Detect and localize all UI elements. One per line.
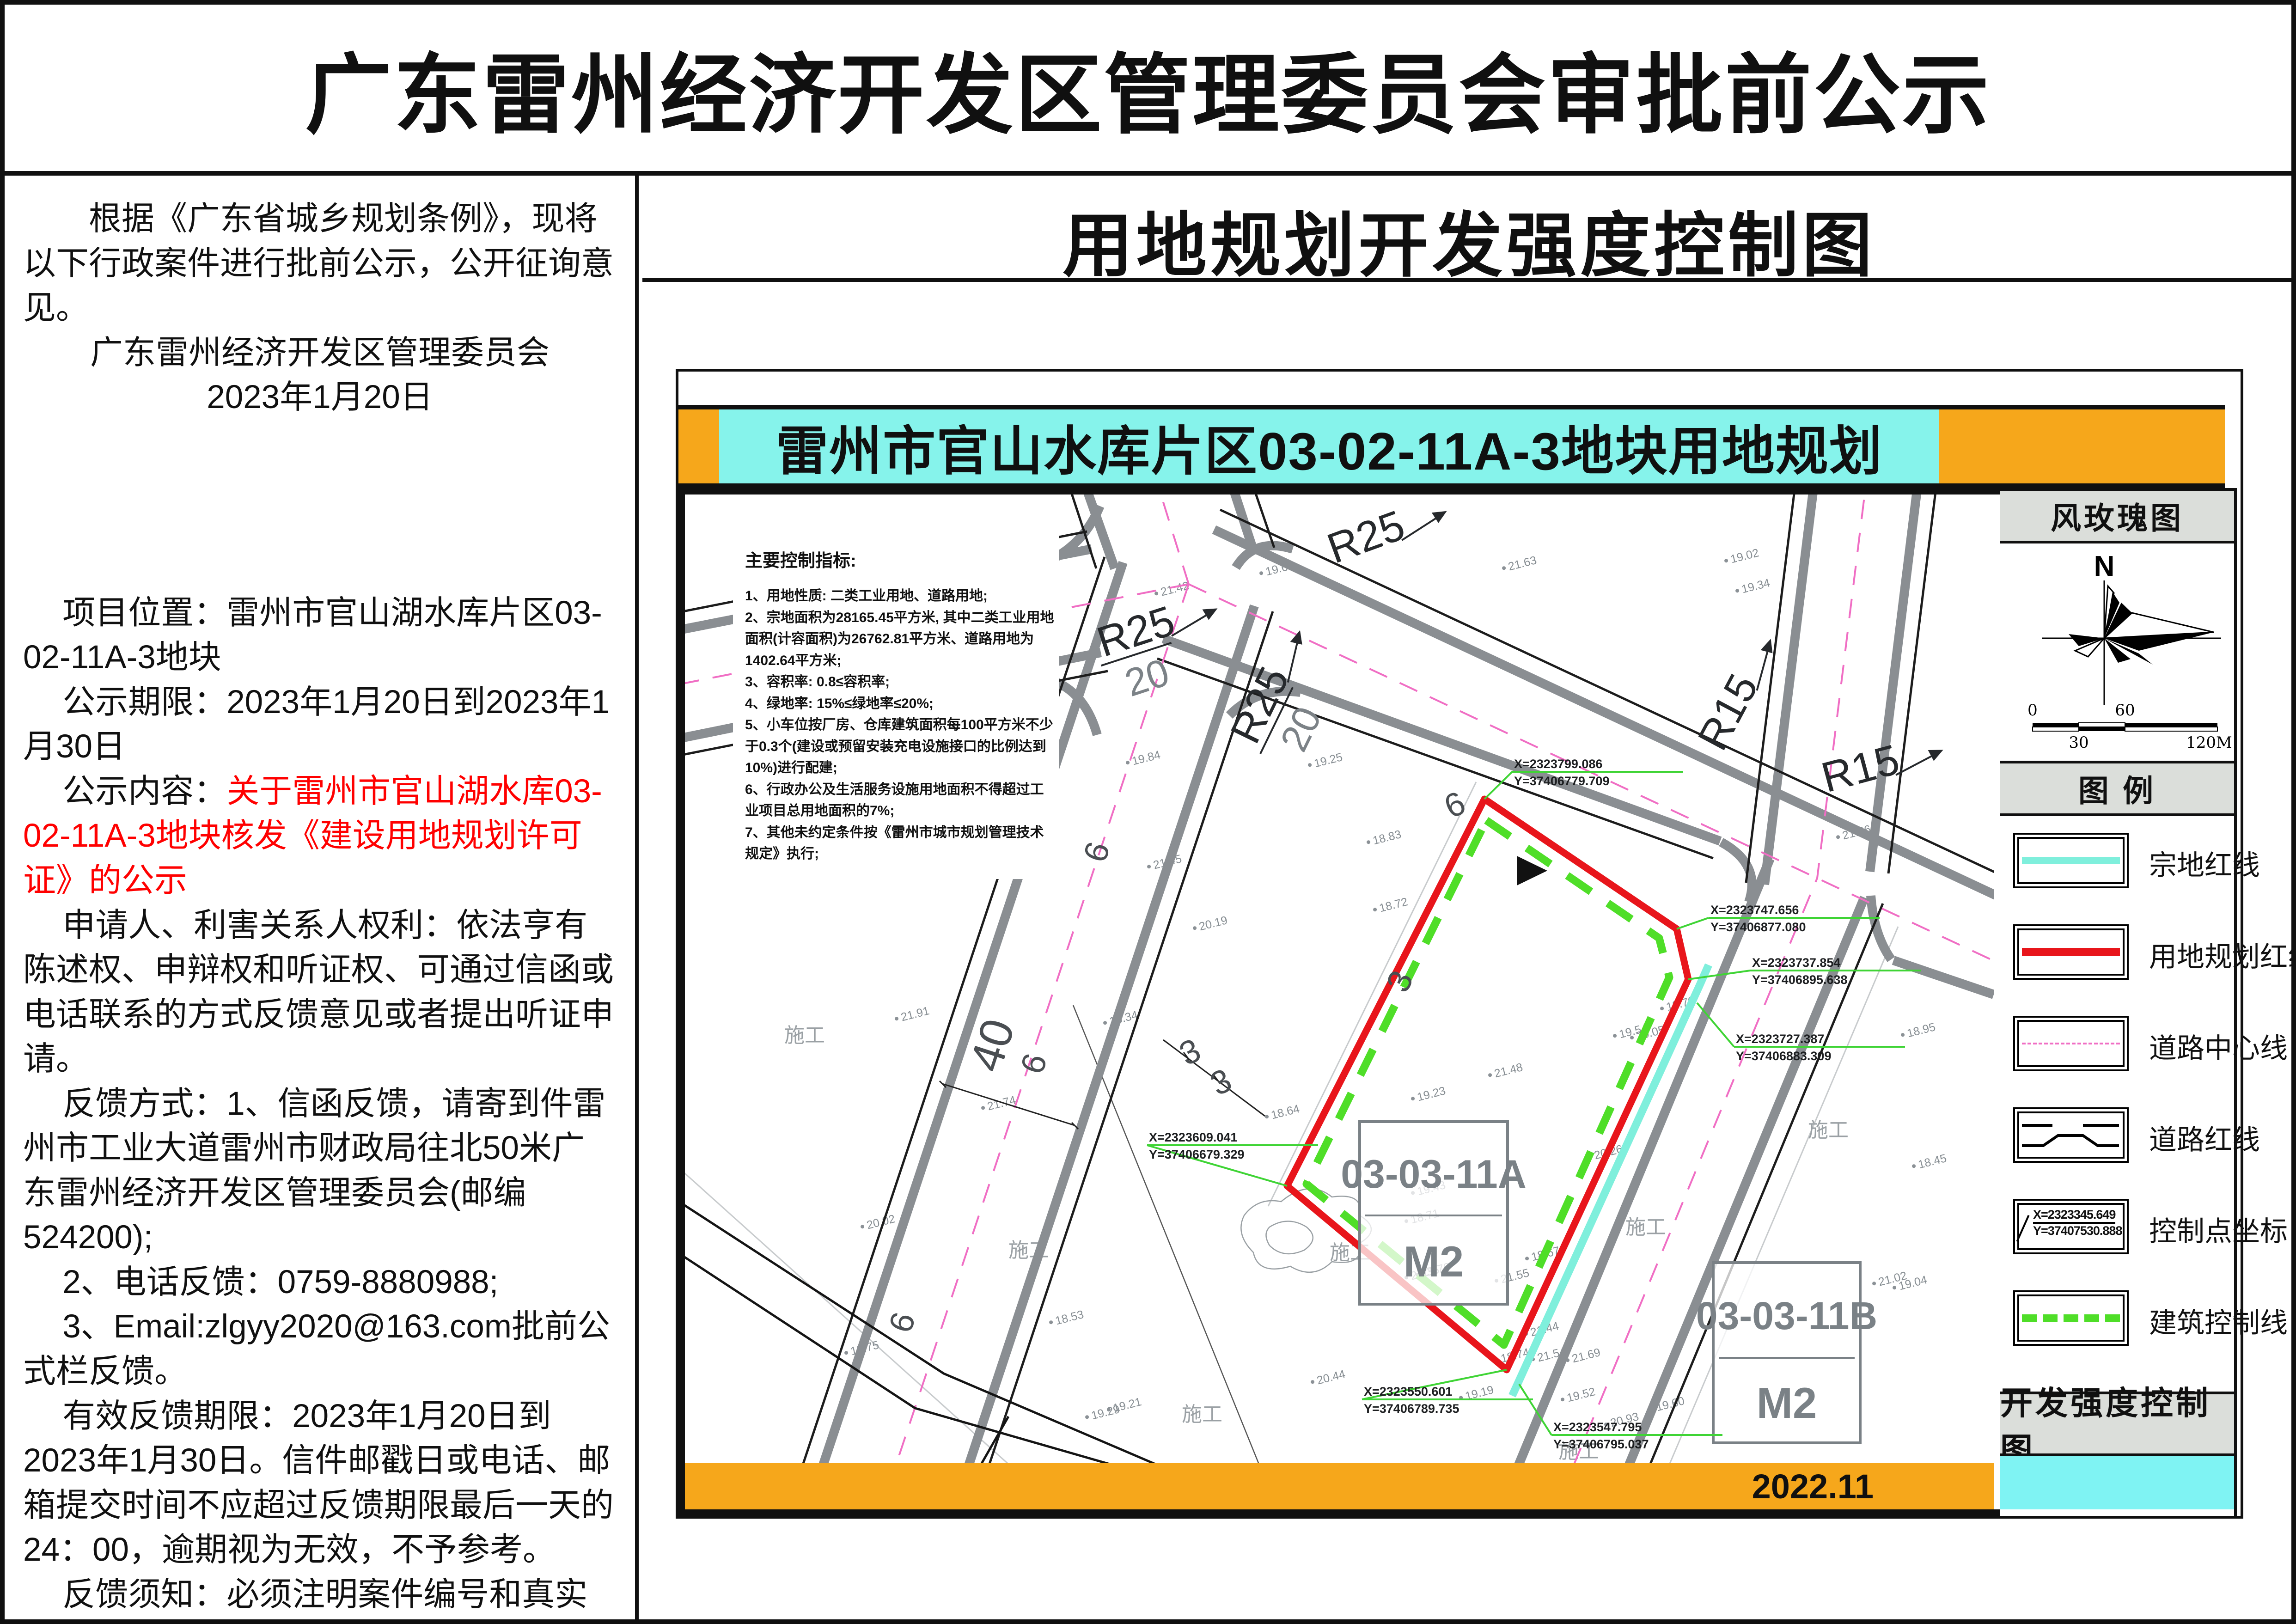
cyan-block xyxy=(2000,1456,2234,1509)
svg-text:X=2323737.854: X=2323737.854 xyxy=(1752,956,1840,970)
svg-text:19.02: 19.02 xyxy=(1729,546,1760,566)
indicator-item: 4、绿地率: 15%≤绿地率≤20%; xyxy=(745,693,1055,715)
legend-swatch-parcel xyxy=(2013,833,2129,888)
spot-elevation: 21.91 xyxy=(893,1004,931,1026)
svg-text:6: 6 xyxy=(1439,784,1471,825)
svg-text:Y=37406679.329: Y=37406679.329 xyxy=(1149,1148,1244,1161)
spot-elevation: 18.53 xyxy=(1048,1308,1085,1329)
spot-elevation: 19.23 xyxy=(1410,1084,1447,1105)
spot-elevation: 18.45 xyxy=(1911,1152,1948,1173)
legend-label: 建筑控制线 xyxy=(2149,1300,2288,1341)
svg-text:M2: M2 xyxy=(1404,1237,1464,1286)
svg-text:18.83: 18.83 xyxy=(1371,828,1402,847)
svg-text:60: 60 xyxy=(2115,701,2135,720)
legend-swatch-centerline xyxy=(2013,1016,2129,1071)
notice-text: 根据《广东省城乡规划条例》，现将以下行政案件进行批前公示，公开征询意见。 xyxy=(23,201,614,326)
legend-swatch-buildingline xyxy=(2013,1290,2129,1346)
construction-label: 施工 xyxy=(1808,1119,1849,1142)
svg-text:18.45: 18.45 xyxy=(1917,1152,1948,1171)
sidebar-paragraph: 3、Email:zlgyy2020@163.com批前公式栏反馈。 xyxy=(23,1305,617,1394)
bottom-header: 开发强度控制图 xyxy=(2000,1392,2234,1456)
svg-text:X=2323547.795: X=2323547.795 xyxy=(1553,1420,1642,1434)
spot-elevation: 19.02 xyxy=(1723,546,1760,568)
spot-elevation: 21.48 xyxy=(1487,1061,1524,1082)
map-titlebar: 雷州市官山水库片区03-02-11A-3地块用地规划 xyxy=(678,405,2225,488)
control-point-sample: X=2323345.649Y=37407530.888 xyxy=(2019,1208,2123,1238)
legend-item: X=2323345.649Y=37407530.888控制点坐标 xyxy=(2000,1182,2234,1274)
banner-title: 广东雷州经济开发区管理委员会审批前公示 xyxy=(5,5,2291,176)
parcel-redline-cyan xyxy=(1512,965,1709,1396)
spot-elevation: 19.34 xyxy=(1734,576,1771,598)
construction-label: 施工 xyxy=(784,1024,825,1047)
svg-text:21.91: 21.91 xyxy=(899,1004,930,1024)
svg-text:21.63: 21.63 xyxy=(1507,554,1538,573)
indicator-item: 1、用地性质: 二类工业用地、道路用地; xyxy=(745,586,1055,607)
sidebar-paragraph: 广东雷州经济开发区管理委员会 xyxy=(23,331,617,376)
notice-text: 反馈方式：1、信函反馈，请寄到件雷州市工业大道雷州市财政局往北50米广东雷州经济… xyxy=(23,1086,606,1256)
notice-text: 有效反馈期限：2023年1月20日到2023年1月30日。信件邮戳日或电话、邮箱… xyxy=(23,1398,614,1569)
construction-label: 施工 xyxy=(1625,1216,1666,1239)
wind-rose-petals xyxy=(2069,586,2214,665)
svg-text:19.34: 19.34 xyxy=(1740,576,1771,596)
svg-text:Y=37406883.309: Y=37406883.309 xyxy=(1736,1049,1831,1063)
legend-label: 控制点坐标 xyxy=(2149,1209,2288,1249)
svg-text:21.69: 21.69 xyxy=(1570,1346,1601,1365)
notice-text: 公示内容： xyxy=(62,773,226,810)
spot-elevation: 20.02 xyxy=(859,1212,897,1233)
svg-text:M2: M2 xyxy=(1757,1379,1817,1427)
svg-text:Y=37406895.638: Y=37406895.638 xyxy=(1752,973,1847,987)
road-label-R25: R25 xyxy=(1321,495,1454,573)
notice-text: 申请人、利害关系人权利：依法亨有陈述权、申辩权和听证权、可通过信函或电话联系的方… xyxy=(23,907,614,1078)
spot-elevation: 18.83 xyxy=(1365,828,1403,849)
notice-text: 3、Email:zlgyy2020@163.com批前公式栏反馈。 xyxy=(23,1308,610,1390)
spot-elevation: 18.64 xyxy=(1264,1102,1301,1123)
notice-text: 项目位置：雷州市官山湖水库片区03-02-11A-3地块 xyxy=(23,595,602,676)
sidebar-paragraph: 2、电话反馈：0759-8880988; xyxy=(23,1260,617,1305)
road-label-3: 3 xyxy=(1205,1062,1237,1103)
road-label-6: 6 xyxy=(882,1308,922,1337)
notice-text: 2、电话反馈：0759-8880988; xyxy=(62,1264,498,1300)
svg-text:R25: R25 xyxy=(1321,501,1411,573)
sidebar-paragraph: 有效反馈期限：2023年1月20日到2023年1月30日。信件邮戳日或电话、邮箱… xyxy=(23,1394,617,1573)
svg-text:X=2323727.387: X=2323727.387 xyxy=(1736,1032,1824,1046)
drawing-title: 用地规划开发强度控制图 xyxy=(642,189,2296,290)
legend-item: 宗地红线 xyxy=(2000,816,2234,908)
notice-text: 公示期限：2023年1月20日到2023年1月30日 xyxy=(23,684,610,765)
legend-item: 用地规划红线 xyxy=(2000,908,2234,999)
spot-elevation: 19.19 xyxy=(1458,1383,1495,1404)
parcel-label-03-03-11B: 03-03-11B M2 xyxy=(1696,1263,1877,1443)
coordinate-callout: X=2323550.601Y=37406789.735 xyxy=(1362,1370,1533,1416)
svg-text:03-03-11B: 03-03-11B xyxy=(1696,1294,1877,1337)
legend-label: 宗地红线 xyxy=(2149,843,2260,883)
legend-item: 道路中心线 xyxy=(2000,999,2234,1091)
svg-text:18.72: 18.72 xyxy=(1378,895,1409,915)
legend-swatch-redline xyxy=(2013,924,2129,980)
legend-label: 道路红线 xyxy=(2149,1117,2260,1158)
svg-text:30: 30 xyxy=(2069,733,2088,752)
map-title: 雷州市官山水库片区03-02-11A-3地块用地规划 xyxy=(719,409,1939,483)
svg-text:Y=37406779.709: Y=37406779.709 xyxy=(1514,774,1609,788)
scale-bar: 0 60 30 120M xyxy=(2027,701,2232,752)
legend-item: 建筑控制线 xyxy=(2000,1274,2234,1365)
svg-text:21.74: 21.74 xyxy=(986,1093,1017,1113)
svg-text:21.48: 21.48 xyxy=(1493,1061,1524,1080)
spot-elevation: 20.19 xyxy=(1191,914,1229,935)
legend-list: 宗地红线用地规划红线道路中心线道路红线X=2323345.649Y=374075… xyxy=(2000,816,2234,1365)
indicator-item: 7、其他未约定条件按《雷州市城市规划管理技术规定》执行; xyxy=(745,822,1055,865)
svg-text:X=2323747.656: X=2323747.656 xyxy=(1710,903,1799,917)
indicator-item: 2、宗地面积为28165.45平方米, 其中二类工业用地面积(计容面积)为267… xyxy=(745,607,1055,672)
svg-text:18.53: 18.53 xyxy=(1054,1308,1085,1327)
wind-rose-box: N xyxy=(2000,543,2234,761)
svg-text:20.44: 20.44 xyxy=(1315,1368,1347,1387)
legend-label: 用地规划红线 xyxy=(2149,934,2296,975)
svg-text:03-03-11A: 03-03-11A xyxy=(1341,1152,1527,1197)
svg-text:Y=37406795.037: Y=37406795.037 xyxy=(1553,1437,1649,1451)
pond-contour-inner xyxy=(1266,1221,1313,1254)
wind-rose: N xyxy=(2000,543,2237,761)
spot-elevation: 21.63 xyxy=(1501,554,1538,575)
legend-item: 道路红线 xyxy=(2000,1091,2234,1182)
svg-text:Y=37406877.080: Y=37406877.080 xyxy=(1710,920,1806,934)
svg-text:6: 6 xyxy=(1014,1049,1054,1078)
road-label-R15: R15 xyxy=(1689,626,1789,758)
sidebar-paragraph: 公示内容：关于雷州市官山湖水库03-02-11A-3地块核发《建设用地规划许可证… xyxy=(23,769,617,904)
svg-text:X=2323550.601: X=2323550.601 xyxy=(1364,1385,1452,1398)
svg-text:R15: R15 xyxy=(1817,736,1904,801)
svg-text:19.29: 19.29 xyxy=(1090,1403,1121,1422)
north-label: N xyxy=(2094,550,2115,582)
spot-elevation: 18.95 xyxy=(1899,1020,1937,1042)
map-frame: 雷州市官山水库片区03-02-11A-3地块用地规划 18.4518.7219.… xyxy=(676,369,2243,1519)
spot-elevation: 19.52 xyxy=(1559,1385,1597,1406)
svg-text:R15: R15 xyxy=(1689,666,1767,757)
sidebar-notice-text: 根据《广东省城乡规划条例》，现将以下行政案件进行批前公示，公开征询意见。广东雷州… xyxy=(5,176,639,1619)
sidebar-paragraph: 公示期限：2023年1月20日到2023年1月30日 xyxy=(23,680,617,769)
sidebar-paragraph: 申请人、利害关系人权利：依法亨有陈述权、申辩权和听证权、可通过信函或电话联系的方… xyxy=(23,904,617,1082)
svg-text:X=2323799.086: X=2323799.086 xyxy=(1514,757,1602,771)
svg-text:19.52: 19.52 xyxy=(1565,1385,1596,1404)
wind-rose-header: 风玫瑰图 xyxy=(2000,488,2234,543)
map-drawing-area: 18.4518.7219.2519.4318.7018.3419.2118.53… xyxy=(685,495,1994,1463)
svg-text:6: 6 xyxy=(1076,837,1117,867)
spot-elevation: 19.29 xyxy=(1084,1403,1121,1424)
sidebar-paragraph: 反馈须知：必须注明案件编号和真实姓名，联系电话、联系地址、邮政编码，如反馈信息不… xyxy=(23,1573,617,1624)
indicator-item: 3、容积率: 0.8≤容积率; xyxy=(745,672,1055,693)
svg-text:19.25: 19.25 xyxy=(1313,751,1343,770)
svg-text:3: 3 xyxy=(1205,1062,1237,1103)
construction-label: 施工 xyxy=(1182,1403,1222,1426)
control-indicators-panel: 主要控制指标: 1、用地性质: 二类工业用地、道路用地;2、宗地面积为28165… xyxy=(733,535,1059,879)
svg-text:X=2323609.041: X=2323609.041 xyxy=(1149,1130,1237,1144)
legend-label: 道路中心线 xyxy=(2149,1026,2288,1066)
drawing-date: 2022.11 xyxy=(1752,1467,1874,1506)
svg-text:6: 6 xyxy=(882,1308,922,1337)
sidebar-paragraph: 2023年1月20日 xyxy=(23,375,617,420)
indicator-item: 5、小车位按厂房、仓库建筑面积每100平方米不少于0.3个(建设或预留安装充电设… xyxy=(745,714,1055,779)
spot-elevation: 18.72 xyxy=(1372,895,1409,916)
legend-header: 图 例 xyxy=(2000,761,2234,816)
title-divider xyxy=(642,278,2296,282)
svg-text:18.95: 18.95 xyxy=(1905,1020,1936,1040)
road-label-6: 6 xyxy=(1014,1049,1054,1078)
svg-text:19.84: 19.84 xyxy=(1130,748,1162,768)
sidebar-paragraph: 项目位置：雷州市官山湖水库片区03-02-11A-3地块 xyxy=(23,591,617,680)
sidebar-paragraph: 根据《广东省城乡规划条例》，现将以下行政案件进行批前公示，公开征询意见。 xyxy=(23,197,617,331)
indicator-item: 6、行政办公及生活服务设施用地面积不得超过工业项目总用地面积的7%; xyxy=(745,779,1055,822)
cadastral-line xyxy=(685,1169,1008,1463)
svg-text:19.23: 19.23 xyxy=(1416,1084,1447,1104)
sidebar-paragraph: 反馈方式：1、信函反馈，请寄到件雷州市工业大道雷州市财政局往北50米广东雷州经济… xyxy=(23,1082,617,1260)
legend-panel: 风玫瑰图 N xyxy=(2000,488,2237,1516)
legend-swatch-roadline xyxy=(2013,1107,2129,1163)
road-label-6: 6 xyxy=(1439,784,1471,825)
coordinate-callout: X=2323727.387Y=37406883.309 xyxy=(1697,1003,1905,1063)
announcement-page: 广东雷州经济开发区管理委员会审批前公示 根据《广东省城乡规划条例》，现将以下行政… xyxy=(0,0,2296,1624)
map-box: 18.4518.7219.2519.4318.7018.3419.2118.53… xyxy=(678,488,2013,1516)
notice-text: 反馈须知：必须注明案件编号和真实姓名，联系电话、联系地址、邮政编码，如反馈信息不… xyxy=(23,1576,614,1624)
parcel-label-03-03-11A: 03-03-11A M2 xyxy=(1341,1122,1527,1304)
svg-text:120M: 120M xyxy=(2186,733,2232,752)
svg-text:20.19: 20.19 xyxy=(1197,914,1228,933)
notice-text: 2023年1月20日 xyxy=(207,379,433,415)
svg-text:Y=37406789.735: Y=37406789.735 xyxy=(1364,1402,1459,1416)
spot-elevation: 20.44 xyxy=(1309,1368,1347,1389)
road-label-6: 6 xyxy=(1076,837,1117,867)
minor-road xyxy=(685,1203,1155,1463)
legend-swatch-controlpoint: X=2323345.649Y=37407530.888 xyxy=(2013,1199,2129,1254)
indicators-title: 主要控制指标: xyxy=(745,546,1055,572)
notice-text: 广东雷州经济开发区管理委员会 xyxy=(90,335,550,371)
date-bar: 2022.11 xyxy=(685,1463,1994,1509)
svg-text:0: 0 xyxy=(2027,701,2038,720)
svg-text:18.64: 18.64 xyxy=(1270,1102,1301,1122)
